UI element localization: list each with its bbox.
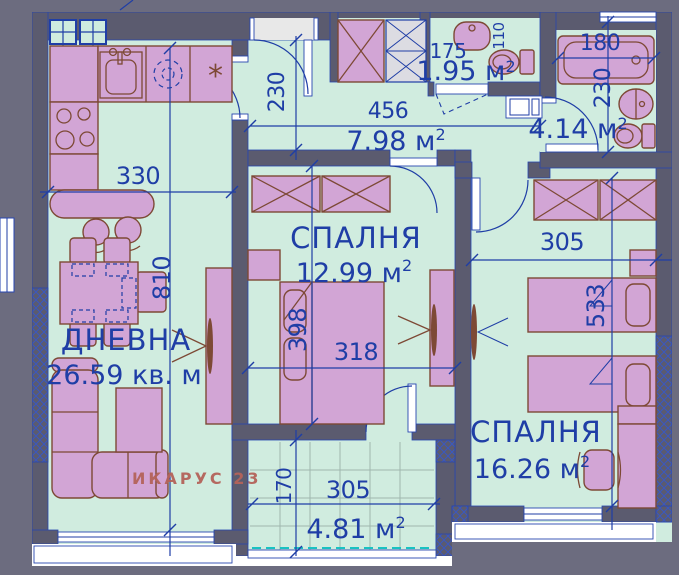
kitchen-corner-cabinet xyxy=(50,46,98,102)
floor-plan-page: * xyxy=(0,0,679,575)
tv-icon xyxy=(431,304,437,356)
dim-living-width: 330 xyxy=(116,162,160,190)
single-bed-2 xyxy=(528,356,656,412)
dim-living-depth: 810 xyxy=(148,256,176,300)
watermark: ИКАРУС 23 xyxy=(132,469,262,488)
fridge-star-symbol: * xyxy=(208,59,223,94)
dining-chair xyxy=(70,238,96,264)
nightstand xyxy=(248,250,280,280)
terrace-area: 4.81 м2 xyxy=(306,513,405,545)
pillow xyxy=(626,284,650,326)
living-label: ДНЕВНА xyxy=(61,323,191,357)
dim-bedroom1-width: 318 xyxy=(334,338,378,366)
dim-bedroom2-width: 305 xyxy=(540,228,584,256)
dim-wc-depth: 110 xyxy=(490,22,508,49)
tv-icon xyxy=(471,304,477,360)
coffee-table xyxy=(116,388,162,452)
dim-terrace-width: 305 xyxy=(326,476,370,504)
pillow xyxy=(626,364,650,406)
floor-plan-svg: * xyxy=(0,0,679,575)
wc-area: 1.95 м2 xyxy=(416,56,515,87)
bedroom1-area: 12.99 м2 xyxy=(296,256,412,289)
tv-icon xyxy=(207,318,213,374)
bathroom-area: 4.14 м2 xyxy=(528,114,627,145)
bedroom2-label: СПАЛНЯ xyxy=(470,415,602,449)
dim-bedroom2-depth: 533 xyxy=(582,284,610,328)
dim-corridor-length: 456 xyxy=(368,99,409,124)
corridor-area: 7.98 м2 xyxy=(346,125,445,157)
hall-wardrobe xyxy=(338,20,384,82)
dim-corridor-depth: 230 xyxy=(265,72,290,113)
dim-bedroom1-depth: 398 xyxy=(284,308,312,352)
bedroom1-label: СПАЛНЯ xyxy=(290,221,422,255)
bedroom2-area: 16.26 м2 xyxy=(474,452,590,485)
dim-terrace-depth: 170 xyxy=(272,468,296,505)
stove xyxy=(50,102,98,154)
terrace-parapet xyxy=(248,550,436,558)
bedroom2-wardrobe xyxy=(534,180,656,220)
dining-chair xyxy=(104,238,130,264)
dim-bath-depth: 230 xyxy=(591,68,616,109)
kitchen-cabinet xyxy=(50,154,98,190)
living-area: 26.59 кв. м xyxy=(46,360,202,391)
dim-bath-width: 180 xyxy=(580,31,621,56)
